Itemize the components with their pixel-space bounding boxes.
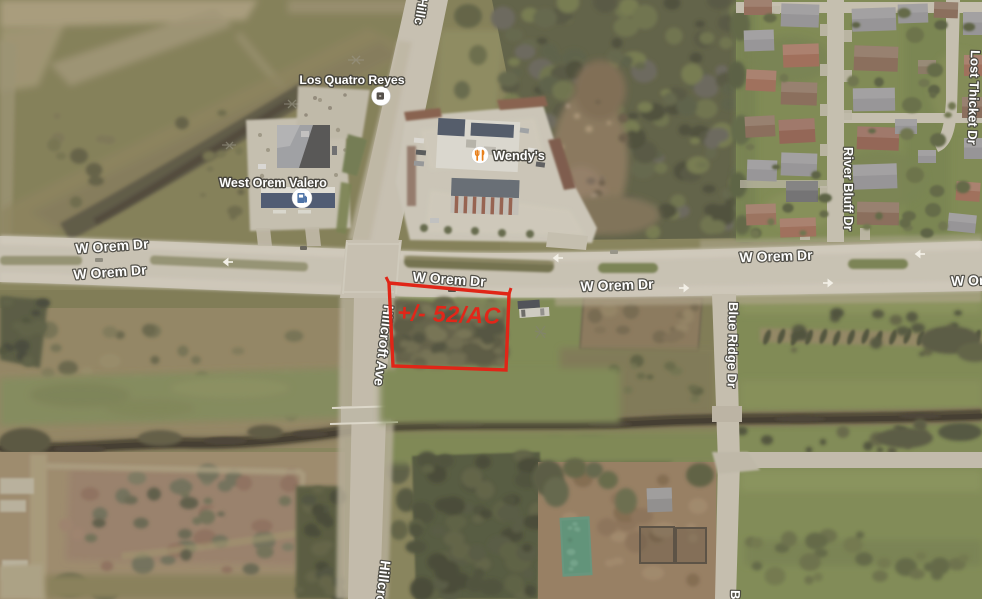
svg-text:Blue Ridge Dr: Blue Ridge Dr (725, 302, 741, 388)
svg-text:+/- 52/AC: +/- 52/AC (397, 299, 501, 329)
svg-text:Los Quatro Reyes: Los Quatro Reyes (299, 73, 404, 87)
svg-text:Wendy's: Wendy's (493, 148, 545, 163)
svg-text:Blue Ridge Dr: Blue Ridge Dr (727, 590, 743, 599)
svg-text:River Bluff Dr: River Bluff Dr (841, 147, 856, 231)
svg-text:W Orem Dr: W Orem Dr (580, 276, 654, 295)
svg-text:W Orem Dr: W Orem Dr (739, 247, 813, 266)
svg-text:W Orem Dr: W Orem Dr (951, 270, 982, 289)
svg-text:West Orem Valero: West Orem Valero (219, 176, 327, 190)
